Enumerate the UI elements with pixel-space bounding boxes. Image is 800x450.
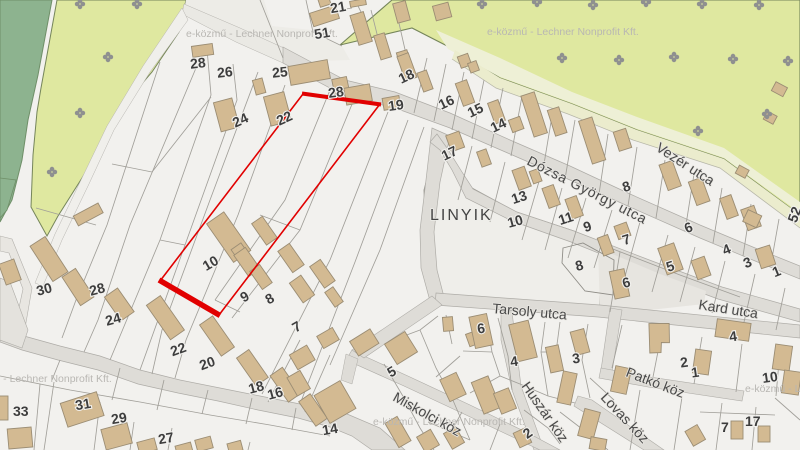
svg-text:27: 27 <box>157 429 175 447</box>
svg-text:25: 25 <box>271 63 288 81</box>
svg-text:e-közmű - Lechner Nonprofit Kf: e-közmű - Lechner Nonprofit Kft. <box>0 373 112 385</box>
svg-text:10: 10 <box>761 368 779 386</box>
svg-text:17: 17 <box>745 413 761 429</box>
svg-text:e-közmű - Lechner Nonprofit Kf: e-közmű - Lechner Nonprofit Kft. <box>487 26 639 38</box>
svg-text:26: 26 <box>216 63 233 81</box>
svg-text:19: 19 <box>387 96 405 114</box>
svg-text:51: 51 <box>313 24 331 42</box>
svg-text:14: 14 <box>321 420 339 438</box>
svg-text:28: 28 <box>327 83 345 101</box>
svg-text:33: 33 <box>13 403 29 419</box>
svg-text:7: 7 <box>721 419 729 435</box>
svg-text:31: 31 <box>74 395 92 413</box>
svg-text:LINYIK: LINYIK <box>430 207 493 224</box>
svg-text:21: 21 <box>329 0 347 16</box>
svg-text:e-közmű - Lechner Nonprofit Kf: e-közmű - Lechner Nonprofit Kft. <box>745 383 800 395</box>
svg-text:28: 28 <box>189 54 206 72</box>
svg-text:29: 29 <box>110 409 128 427</box>
